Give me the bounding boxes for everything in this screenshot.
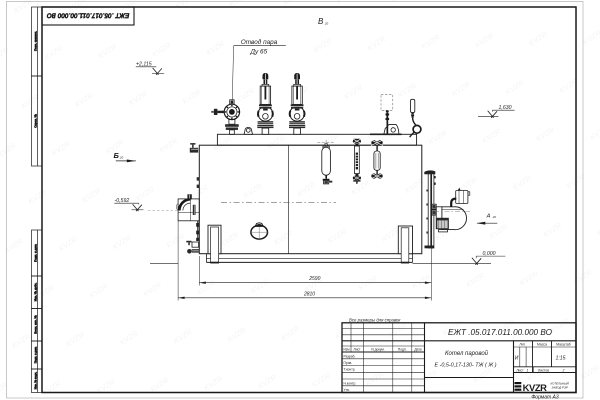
- svg-text:Подп.: Подп.: [398, 347, 407, 351]
- svg-text:Т.контр.: Т.контр.: [344, 368, 356, 372]
- svg-text:Лист: Лист: [353, 347, 361, 351]
- svg-text:А: А: [486, 214, 491, 220]
- svg-text:Формат А3: Формат А3: [531, 394, 559, 400]
- svg-text:Перв. примен.: Перв. примен.: [34, 31, 38, 51]
- svg-text:ЕЖТ .05.017.011.00.000 ВО: ЕЖТ .05.017.011.00.000 ВО: [448, 327, 552, 337]
- svg-text:2: 2: [562, 368, 565, 372]
- svg-text:20: 20: [119, 156, 124, 160]
- svg-text:Дата: Дата: [414, 347, 421, 351]
- svg-text:Инв. № подл.: Инв. № подл.: [34, 372, 38, 390]
- svg-text:ЗАВОД РЭР: ЗАВОД РЭР: [552, 386, 568, 390]
- svg-text:1: 1: [527, 368, 529, 372]
- svg-text:2810: 2810: [303, 291, 315, 297]
- svg-text:Б: Б: [114, 151, 120, 160]
- svg-text:Взам. инв. №: Взам. инв. №: [34, 314, 38, 333]
- svg-text:Масса: Масса: [537, 342, 547, 346]
- svg-text:Изм: Изм: [343, 347, 350, 351]
- svg-text:Подп. и дата: Подп. и дата: [34, 346, 38, 363]
- svg-text:Пров.: Пров.: [344, 361, 353, 365]
- svg-text:1:15: 1:15: [555, 356, 565, 362]
- svg-text:В: В: [318, 17, 324, 26]
- svg-text:Лист: Лист: [516, 368, 524, 372]
- svg-text:Справ. №: Справ. №: [34, 113, 38, 127]
- svg-text:Ду 65: Ду 65: [249, 48, 267, 55]
- svg-text:ЕЖТ .05.017.011.00.000 ВО: ЕЖТ .05.017.011.00.000 ВО: [47, 12, 130, 18]
- svg-text:Разраб.: Разраб.: [344, 354, 356, 358]
- svg-text:+2,115: +2,115: [136, 61, 152, 67]
- svg-text:20: 20: [492, 215, 497, 219]
- svg-text:1,630: 1,630: [499, 105, 512, 111]
- svg-text:N докум.: N докум.: [371, 347, 384, 351]
- svg-text:Подп. и дата: Подп. и дата: [34, 244, 38, 262]
- svg-text:Утв.: Утв.: [344, 388, 350, 392]
- svg-text:Е -0,5-0,17-130- ТЖ ( Ж ): Е -0,5-0,17-130- ТЖ ( Ж ): [434, 363, 496, 369]
- svg-text:2590: 2590: [308, 276, 320, 282]
- svg-text:И: И: [515, 356, 519, 362]
- svg-text:Котел паровой: Котел паровой: [445, 350, 489, 357]
- svg-text:20: 20: [324, 22, 329, 26]
- svg-text:Инв. № дубл.: Инв. № дубл.: [34, 283, 38, 302]
- svg-text:Масштаб: Масштаб: [556, 342, 571, 346]
- svg-text:KVZR: KVZR: [523, 382, 548, 393]
- svg-text:Все размеры для справок: Все размеры для справок: [349, 317, 401, 322]
- svg-text:Лит.: Лит.: [519, 342, 525, 346]
- svg-text:Отвод пара: Отвод пара: [241, 38, 278, 46]
- svg-text:Н.контр.: Н.контр.: [344, 381, 357, 385]
- svg-text:Листов: Листов: [538, 368, 549, 372]
